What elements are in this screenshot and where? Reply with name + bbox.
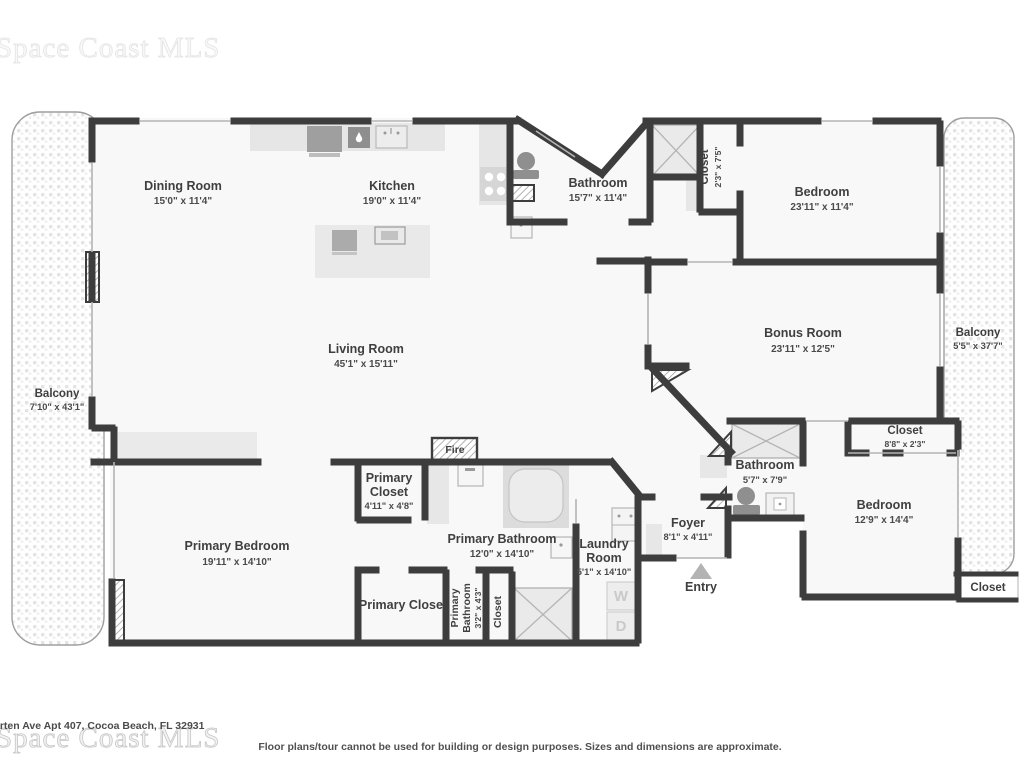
bedroom-right-dims: 12'9" x 14'4" (855, 515, 914, 526)
entry-arrow-icon (690, 563, 712, 579)
exterior-closet-label: Closet (970, 582, 1005, 594)
hall-closet-label: Closet (699, 149, 711, 184)
stove-icon (480, 167, 510, 201)
floor-plan-drawing: Dining Room 15'0" x 11'4" Kitchen 19'0" … (0, 0, 1024, 768)
bedroom-top-dims: 23'11" x 11'4" (790, 202, 853, 213)
primary-bathroom-small-label1: Primary (449, 588, 461, 627)
watermark-top: Space Coast MLS (0, 32, 220, 64)
laundry-room-dims: 5'1" x 14'10" (577, 567, 632, 577)
balcony-left-area (12, 112, 104, 645)
balcony-left-dims: 7'10" x 43'1" (30, 402, 85, 412)
bonus-room-dims: 23'11" x 12'5" (771, 344, 835, 355)
kitchen-dims: 19'0" x 11'4" (363, 196, 421, 207)
primary-bathroom-label: Primary Bathroom (447, 532, 556, 546)
address-text: arten Ave Apt 407, Cocoa Beach, FL 32931 (0, 720, 205, 732)
toilet-icon (458, 462, 483, 486)
bedroom-right-label: Bedroom (857, 498, 912, 512)
balcony-right-label: Balcony (956, 327, 1001, 339)
bedroom-closet-label: Closet (887, 425, 922, 437)
sink-icon (348, 127, 370, 148)
double-sink-icon (376, 126, 407, 148)
floor-plan-page: Dining Room 15'0" x 11'4" Kitchen 19'0" … (0, 0, 1024, 768)
bedroom-closet-dims: 8'8" x 2'3" (885, 439, 926, 449)
balcony-right-dims: 5'5" x 37'7" (953, 341, 1002, 351)
foyer-label: Foyer (671, 516, 705, 530)
entry-label: Entry (685, 580, 717, 594)
bedroom-top-label: Bedroom (795, 185, 850, 199)
primary-closet-large-label: Primary Closet (359, 598, 448, 612)
primary-closet-small-label1: Primary (366, 471, 413, 485)
foyer-dims: 8'1" x 4'11" (664, 532, 713, 542)
dryer-label: D (616, 618, 627, 635)
living-room-label: Living Room (328, 342, 404, 356)
laundry-room-label1: Laundry (579, 537, 628, 551)
dining-room-dims: 15'0" x 11'4" (154, 196, 212, 207)
living-room-dims: 45'1" x 15'11" (334, 359, 398, 370)
dishwasher-icon (332, 230, 357, 251)
vanity-counter (427, 464, 449, 524)
balcony-left-label: Balcony (35, 388, 80, 400)
washer-label: W (614, 588, 629, 605)
primary-bedroom-dims: 19'11" x 14'10" (202, 557, 272, 568)
bathroom-right-label: Bathroom (735, 458, 794, 472)
laundry-room-label2: Room (586, 551, 621, 565)
kitchen-label: Kitchen (369, 179, 415, 193)
primary-closet-small-label2: Closet (370, 485, 409, 499)
shower-icon (652, 125, 700, 176)
bonus-room-label: Bonus Room (764, 326, 842, 340)
inner-closet-label: Closet (492, 595, 504, 628)
disclaimer-text: Floor plans/tour cannot be used for buil… (258, 741, 781, 753)
tub-icon (503, 463, 569, 528)
hall-closet-dims: 2'3" x 7'5" (713, 147, 723, 188)
living-room-console (118, 432, 257, 459)
primary-bathroom-small-label2: Bathroom (461, 583, 473, 633)
bathroom-right-dims: 5'7" x 7'9" (743, 475, 787, 485)
shower-icon (514, 588, 572, 641)
primary-closet-small-dims: 4'11" x 4'8" (365, 501, 414, 511)
bathroom-top-label: Bathroom (568, 176, 627, 190)
bathroom-top-dims: 15'7" x 11'4" (569, 193, 627, 204)
kitchen-island (315, 225, 430, 278)
shower-icon (732, 424, 800, 458)
primary-bathroom-small-dims: 3'2" x 4'3" (473, 588, 483, 629)
primary-bedroom-label: Primary Bedroom (185, 539, 290, 553)
fire-label: Fire (445, 444, 464, 456)
primary-bathroom-dims: 12'0" x 14'10" (470, 549, 535, 560)
kitchen-counter (250, 123, 445, 151)
sink-icon (766, 493, 794, 516)
dining-room-label: Dining Room (144, 179, 222, 193)
